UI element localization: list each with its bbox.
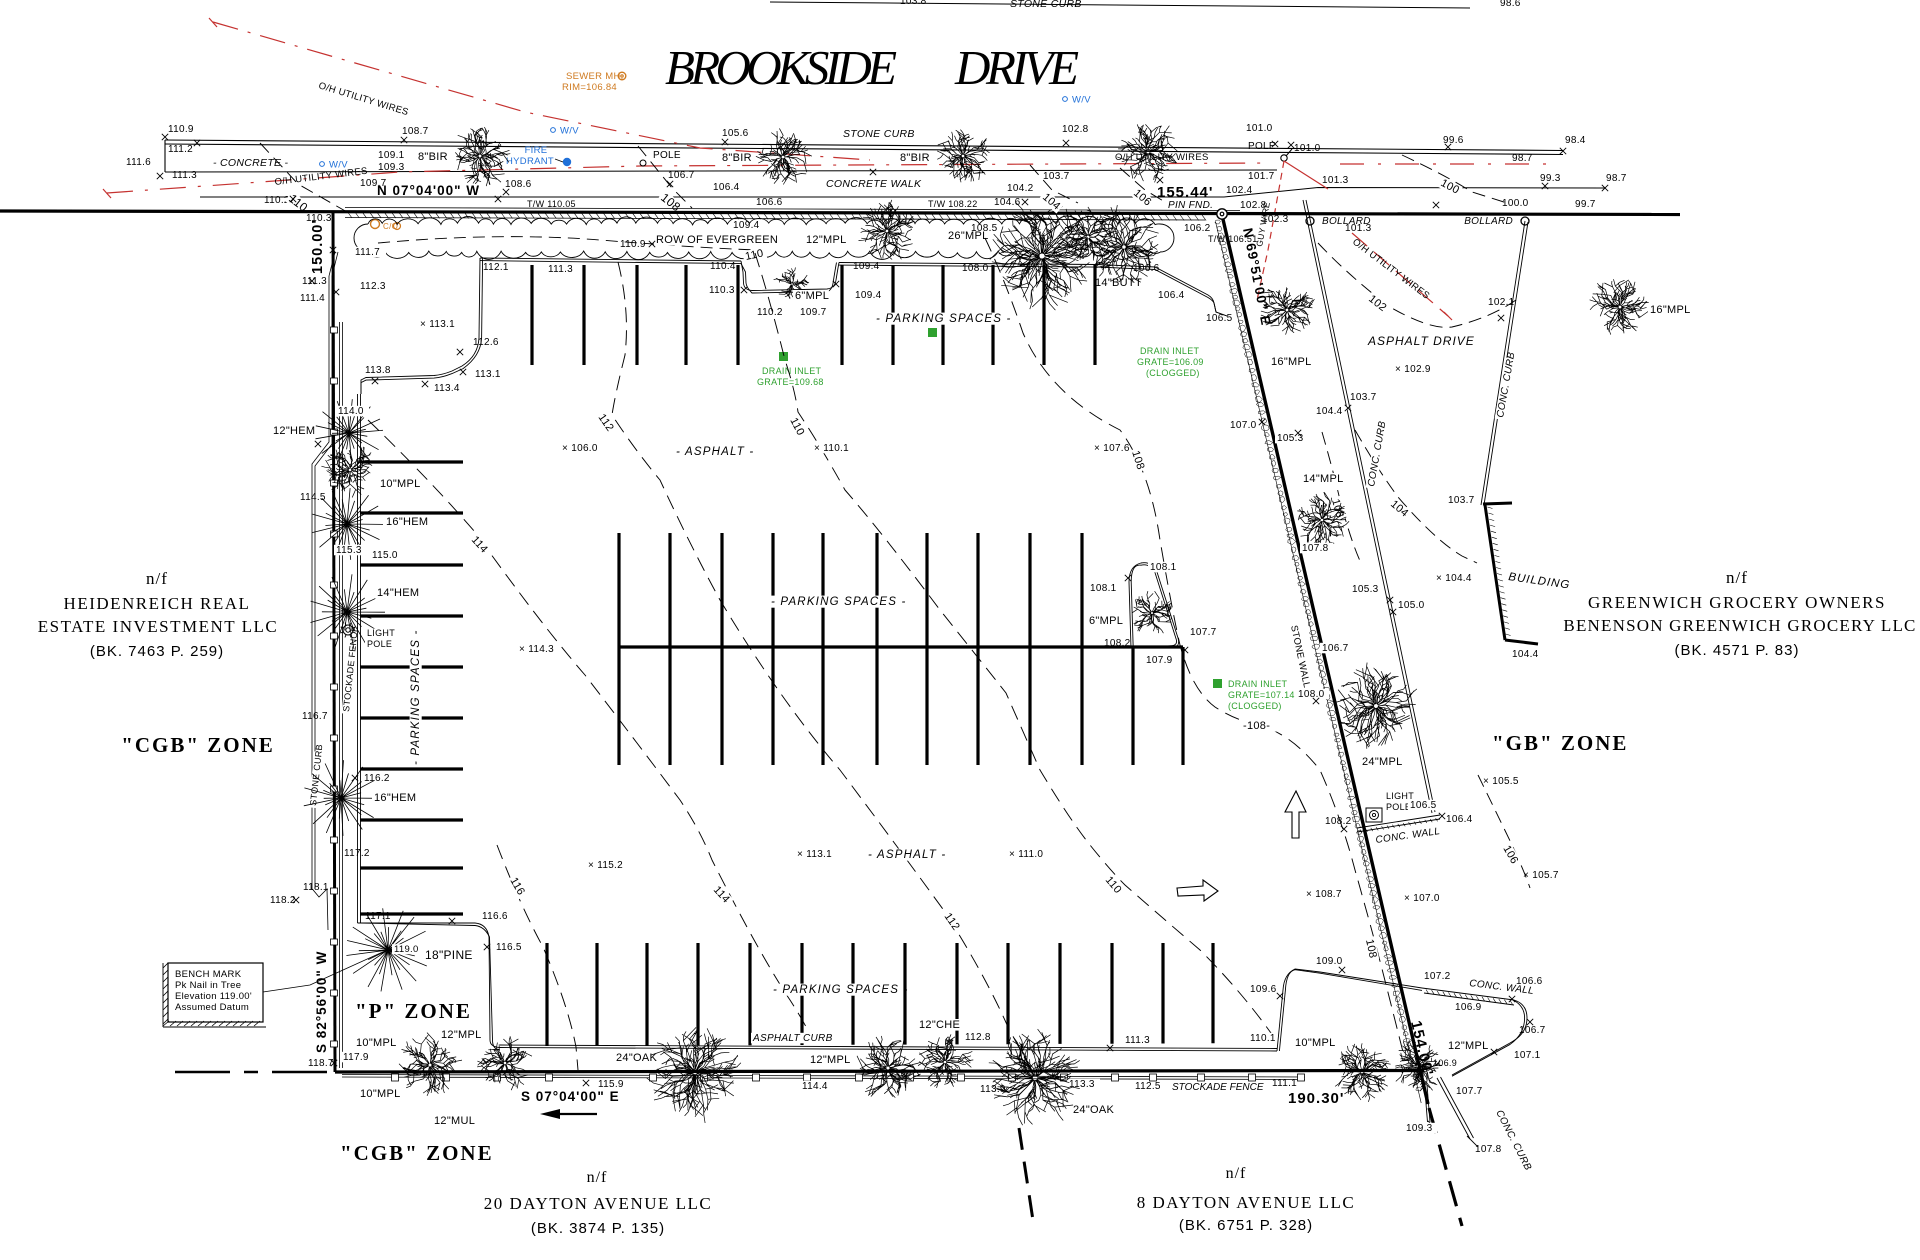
svg-text:DRAIN INLET: DRAIN INLET [1140, 346, 1200, 356]
svg-text:118.7: 118.7 [308, 1058, 334, 1069]
svg-text:117.2: 117.2 [344, 848, 370, 859]
svg-text:(BK. 7463 P. 259): (BK. 7463 P. 259) [90, 643, 224, 660]
svg-text:× 105.7: × 105.7 [1523, 870, 1559, 881]
svg-text:6"MPL: 6"MPL [795, 290, 829, 302]
svg-text:GREENWICH GROCERY OWNERS: GREENWICH GROCERY OWNERS [1588, 593, 1886, 612]
svg-text:103.7: 103.7 [1350, 392, 1377, 403]
svg-text:24"OAK: 24"OAK [1073, 1104, 1115, 1116]
svg-text:107.2: 107.2 [1424, 971, 1451, 982]
svg-text:DRIVE: DRIVE [954, 40, 1079, 95]
svg-text:ROW OF EVERGREEN: ROW OF EVERGREEN [656, 234, 778, 246]
svg-text:× 111.0: × 111.0 [1009, 849, 1043, 860]
svg-text:105.6: 105.6 [722, 128, 749, 139]
svg-text:(CLOGGED): (CLOGGED) [1146, 368, 1200, 378]
svg-text:106.6: 106.6 [1516, 976, 1543, 987]
svg-text:(BK. 3874 P. 135): (BK. 3874 P. 135) [531, 1220, 665, 1237]
svg-text:112.6: 112.6 [473, 337, 499, 348]
svg-text:101.7: 101.7 [1248, 171, 1275, 182]
svg-text:"CGB" ZONE: "CGB" ZONE [121, 733, 275, 757]
svg-text:108.2: 108.2 [1104, 638, 1131, 649]
svg-text:104.4: 104.4 [1316, 406, 1343, 417]
svg-text:12"HEM: 12"HEM [273, 425, 315, 437]
svg-text:112.8: 112.8 [965, 1032, 991, 1043]
svg-text:109.4: 109.4 [733, 220, 760, 231]
svg-text:W/V: W/V [1072, 95, 1091, 106]
svg-text:150.00': 150.00' [310, 219, 326, 274]
svg-text:n/f: n/f [1226, 1165, 1247, 1182]
svg-text:- PARKING SPACES -: - PARKING SPACES - [771, 596, 907, 608]
svg-text:14"BUTT: 14"BUTT [1095, 277, 1142, 289]
svg-text:ASPHALT DRIVE: ASPHALT DRIVE [1367, 334, 1475, 348]
svg-text:10"MPL: 10"MPL [360, 1088, 401, 1100]
svg-text:- CONCRETE -: - CONCRETE - [213, 157, 289, 169]
svg-text:S 82°56'00" W: S 82°56'00" W [314, 951, 329, 1053]
svg-text:110.3: 110.3 [306, 213, 332, 224]
svg-text:107.7: 107.7 [1456, 1086, 1483, 1097]
svg-text:109.7: 109.7 [360, 178, 387, 189]
svg-text:24"OAK: 24"OAK [616, 1052, 658, 1064]
svg-text:FIRE: FIRE [525, 145, 548, 156]
svg-text:10"MPL: 10"MPL [356, 1037, 397, 1049]
svg-text:106.2: 106.2 [1184, 223, 1211, 234]
svg-text:116.5: 116.5 [496, 942, 522, 953]
svg-text:110.9: 110.9 [620, 239, 646, 250]
svg-text:107.8: 107.8 [1302, 543, 1329, 554]
svg-text:103.7: 103.7 [1043, 171, 1070, 182]
svg-text:20 DAYTON AVENUE LLC: 20 DAYTON AVENUE LLC [484, 1194, 713, 1213]
svg-text:101.3: 101.3 [1322, 175, 1349, 186]
svg-text:102.1: 102.1 [1488, 297, 1515, 308]
svg-text:× 108.7: × 108.7 [1306, 889, 1342, 900]
svg-text:BENENSON GREENWICH GROCERY LLC: BENENSON GREENWICH GROCERY LLC [1563, 616, 1916, 635]
svg-text:DRAIN INLET: DRAIN INLET [762, 366, 822, 376]
svg-text:116.6: 116.6 [482, 911, 508, 922]
svg-text:111.3: 111.3 [172, 170, 197, 181]
svg-text:101.0: 101.0 [1294, 143, 1321, 154]
svg-text:- ASPHALT -: - ASPHALT - [676, 446, 754, 458]
svg-text:108.1: 108.1 [1090, 583, 1117, 594]
svg-text:× 114.3: × 114.3 [519, 644, 554, 655]
svg-text:× 102.9: × 102.9 [1395, 364, 1431, 375]
svg-text:102.8: 102.8 [1240, 200, 1267, 211]
svg-text:106.4: 106.4 [1446, 814, 1473, 825]
svg-text:- PARKING SPACES -: - PARKING SPACES - [410, 629, 422, 765]
svg-text:116.2: 116.2 [364, 773, 390, 784]
svg-text:106.7: 106.7 [668, 170, 695, 181]
svg-text:110.3: 110.3 [709, 285, 735, 296]
svg-text:112.5: 112.5 [1135, 1081, 1161, 1092]
svg-text:16"HEM: 16"HEM [386, 516, 428, 528]
svg-text:LIGHT: LIGHT [367, 628, 395, 638]
svg-text:12"MUL: 12"MUL [434, 1115, 475, 1127]
svg-text:"P" ZONE: "P" ZONE [355, 999, 472, 1023]
svg-text:GRATE=106.09: GRATE=106.09 [1137, 357, 1204, 367]
svg-text:98.7: 98.7 [1606, 173, 1627, 184]
svg-text:109.4: 109.4 [853, 261, 880, 272]
svg-text:110.2: 110.2 [757, 307, 783, 318]
svg-text:106.5: 106.5 [1206, 313, 1233, 324]
svg-text:STONE CURB: STONE CURB [843, 128, 915, 140]
svg-text:8"BIR: 8"BIR [722, 152, 752, 164]
svg-text:PIN FND.: PIN FND. [1168, 200, 1213, 211]
svg-text:C/O: C/O [383, 222, 398, 231]
svg-text:109.7: 109.7 [800, 307, 827, 318]
svg-text:113.4: 113.4 [434, 383, 460, 394]
svg-text:n/f: n/f [587, 1169, 608, 1186]
svg-text:8"BIR: 8"BIR [418, 151, 448, 163]
svg-text:POLE: POLE [653, 150, 681, 161]
svg-text:99.6: 99.6 [1443, 135, 1464, 146]
svg-text:114.5: 114.5 [300, 492, 326, 503]
svg-text:111.3: 111.3 [302, 276, 327, 287]
svg-text:BROOKSIDE: BROOKSIDE [665, 40, 897, 95]
svg-text:24"MPL: 24"MPL [1362, 756, 1403, 768]
svg-text:106.6: 106.6 [756, 197, 783, 208]
svg-text:108.7: 108.7 [402, 126, 429, 137]
svg-text:104.4: 104.4 [1512, 649, 1539, 660]
svg-text:CONCRETE WALK: CONCRETE WALK [826, 178, 922, 190]
svg-text:106.4: 106.4 [1158, 290, 1185, 301]
svg-text:106.9: 106.9 [1455, 1002, 1482, 1013]
svg-text:12"MPL: 12"MPL [1448, 1040, 1489, 1052]
svg-text:- PARKING SPACES -: - PARKING SPACES - [773, 984, 909, 996]
svg-text:108.0: 108.0 [1298, 689, 1325, 700]
svg-text:98.7: 98.7 [1512, 153, 1533, 164]
svg-text:Pk Nail in Tree: Pk Nail in Tree [175, 980, 241, 991]
svg-text:16"HEM: 16"HEM [374, 792, 416, 804]
svg-text:106.9: 106.9 [1433, 1058, 1457, 1068]
svg-text:SEWER MH.: SEWER MH. [566, 71, 624, 82]
svg-text:POLE: POLE [1248, 141, 1276, 152]
svg-text:111.3: 111.3 [1125, 1035, 1150, 1046]
svg-text:S 07°04'00" E: S 07°04'00" E [521, 1089, 620, 1104]
svg-text:× 106.0: × 106.0 [562, 443, 598, 454]
svg-text:111.7: 111.7 [355, 247, 380, 258]
svg-text:× 107.6: × 107.6 [1094, 443, 1130, 454]
svg-text:113.3: 113.3 [1069, 1079, 1095, 1090]
svg-text:× 113.1: × 113.1 [420, 319, 455, 330]
svg-text:16"MPL: 16"MPL [1650, 304, 1691, 316]
svg-text:114.0: 114.0 [338, 406, 364, 417]
svg-text:- PARKING SPACES -: - PARKING SPACES - [876, 313, 1012, 325]
svg-text:107.0: 107.0 [1230, 420, 1257, 431]
svg-text:Elevation 119.00': Elevation 119.00' [175, 991, 252, 1002]
svg-text:117.1: 117.1 [365, 911, 391, 922]
svg-text:n/f: n/f [146, 569, 168, 588]
svg-text:12"MPL: 12"MPL [806, 234, 847, 246]
svg-text:BENCH MARK: BENCH MARK [175, 969, 242, 980]
svg-text:109.4: 109.4 [855, 290, 882, 301]
svg-text:116.7: 116.7 [302, 711, 328, 722]
svg-text:100.0: 100.0 [1502, 198, 1529, 209]
svg-text:111.3: 111.3 [548, 264, 573, 275]
svg-text:109.3: 109.3 [1406, 1123, 1433, 1134]
svg-text:102.3: 102.3 [1262, 214, 1289, 225]
svg-text:102.4: 102.4 [1226, 185, 1253, 196]
svg-text:10"MPL: 10"MPL [380, 478, 421, 490]
svg-text:× 107.0: × 107.0 [1404, 893, 1440, 904]
svg-text:110.9: 110.9 [168, 124, 194, 135]
svg-text:HYDRANT: HYDRANT [506, 156, 554, 167]
svg-text:107.7: 107.7 [1190, 627, 1217, 638]
svg-text:108.1: 108.1 [1150, 562, 1177, 573]
svg-text:106.7: 106.7 [1322, 643, 1349, 654]
svg-text:16"MPL: 16"MPL [1271, 356, 1312, 368]
svg-text:14"MPL: 14"MPL [1303, 473, 1344, 485]
svg-text:109.3: 109.3 [378, 162, 405, 173]
svg-text:(CLOGGED): (CLOGGED) [1228, 701, 1282, 711]
svg-text:111.4: 111.4 [300, 293, 325, 304]
svg-text:117.9: 117.9 [343, 1052, 369, 1063]
svg-text:Assumed Datum: Assumed Datum [175, 1002, 249, 1013]
svg-text:POLE: POLE [1386, 802, 1411, 812]
svg-text:112.1: 112.1 [483, 262, 509, 273]
svg-text:12"MPL: 12"MPL [441, 1029, 482, 1041]
svg-text:12"MPL: 12"MPL [810, 1054, 851, 1066]
svg-text:108.5: 108.5 [971, 223, 998, 234]
svg-text:DRAIN INLET: DRAIN INLET [1228, 679, 1288, 689]
svg-text:115.9: 115.9 [598, 1079, 624, 1090]
svg-text:103.7: 103.7 [1448, 495, 1475, 506]
svg-text:107.8: 107.8 [1475, 1144, 1502, 1155]
svg-text:109.6: 109.6 [1250, 984, 1277, 995]
svg-text:99.7: 99.7 [1575, 199, 1596, 210]
svg-text:110.1: 110.1 [1250, 1033, 1276, 1044]
svg-text:- ASPHALT -: - ASPHALT - [868, 849, 946, 861]
svg-text:109.1: 109.1 [378, 150, 405, 161]
svg-text:× 105.5: × 105.5 [1483, 776, 1519, 787]
svg-text:108.2: 108.2 [1325, 816, 1352, 827]
svg-text:105.0: 105.0 [1398, 600, 1425, 611]
svg-text:× 104.4: × 104.4 [1436, 573, 1472, 584]
svg-text:112.3: 112.3 [360, 281, 386, 292]
svg-text:111.6: 111.6 [126, 157, 151, 168]
svg-text:ESTATE INVESTMENT LLC: ESTATE INVESTMENT LLC [38, 617, 278, 636]
svg-text:BOLLARD: BOLLARD [1464, 216, 1513, 227]
svg-text:113.8: 113.8 [365, 365, 391, 376]
svg-text:118.2: 118.2 [270, 895, 296, 906]
svg-text:104.2: 104.2 [1007, 183, 1034, 194]
svg-text:98.4: 98.4 [1565, 135, 1586, 146]
svg-text:108.6: 108.6 [505, 179, 532, 190]
svg-text:T/W 110.05: T/W 110.05 [527, 199, 576, 209]
svg-text:RIM=106.84: RIM=106.84 [562, 82, 617, 93]
svg-text:18"PINE: 18"PINE [425, 948, 473, 962]
svg-text:119.0: 119.0 [394, 944, 419, 955]
svg-text:"GB" ZONE: "GB" ZONE [1492, 731, 1628, 755]
svg-text:118.1: 118.1 [303, 882, 329, 893]
svg-text:× 115.2: × 115.2 [588, 860, 623, 871]
svg-text:6"MPL: 6"MPL [1089, 615, 1123, 627]
svg-text:115.0: 115.0 [372, 550, 398, 561]
svg-text:107.1: 107.1 [1514, 1050, 1541, 1061]
svg-text:T/W 108.22: T/W 108.22 [928, 199, 978, 209]
svg-text:102.8: 102.8 [1062, 124, 1089, 135]
svg-text:114.4: 114.4 [802, 1081, 828, 1092]
svg-text:12"CHE: 12"CHE [919, 1019, 960, 1031]
svg-text:N 07°04'00" W: N 07°04'00" W [377, 183, 480, 198]
svg-text:99.3: 99.3 [1540, 173, 1561, 184]
svg-text:STONE CURB: STONE CURB [1010, 0, 1082, 10]
svg-text:105.3: 105.3 [1352, 584, 1379, 595]
svg-text:106.6: 106.6 [1133, 263, 1160, 274]
svg-text:111.1: 111.1 [1272, 1078, 1297, 1089]
svg-text:W/V: W/V [560, 126, 579, 137]
svg-text:"CGB" ZONE: "CGB" ZONE [340, 1141, 494, 1165]
svg-text:109.0: 109.0 [1316, 956, 1343, 967]
svg-text:10"MPL: 10"MPL [1295, 1037, 1336, 1049]
svg-text:n/f: n/f [1726, 568, 1748, 587]
svg-text:106.5: 106.5 [1410, 800, 1437, 811]
svg-text:103.8: 103.8 [900, 0, 927, 7]
svg-text:107.9: 107.9 [1146, 655, 1173, 666]
svg-text:× 110.1: × 110.1 [814, 443, 849, 454]
svg-text:106.7: 106.7 [1519, 1025, 1546, 1036]
svg-text:113.1: 113.1 [475, 369, 501, 380]
svg-text:HEIDENREICH REAL: HEIDENREICH REAL [64, 594, 251, 613]
svg-text:111.2: 111.2 [168, 144, 193, 155]
svg-text:108.0: 108.0 [962, 263, 989, 274]
svg-text:101.0: 101.0 [1246, 123, 1273, 134]
svg-text:-108-: -108- [1243, 720, 1270, 732]
svg-text:ASPHALT CURB: ASPHALT CURB [752, 1033, 833, 1044]
svg-text:(BK. 4571 P. 83): (BK. 4571 P. 83) [1675, 642, 1800, 659]
svg-text:8"BIR: 8"BIR [900, 152, 930, 164]
svg-text:(BK. 6751 P. 328): (BK. 6751 P. 328) [1179, 1217, 1313, 1234]
svg-text:O/H UTILITY WIRES: O/H UTILITY WIRES [1115, 152, 1209, 163]
svg-text:98.6: 98.6 [1500, 0, 1521, 9]
svg-text:14"HEM: 14"HEM [377, 587, 419, 599]
svg-text:190.30': 190.30' [1288, 1090, 1344, 1107]
svg-text:110.4: 110.4 [710, 261, 736, 272]
svg-text:115.3: 115.3 [336, 545, 362, 556]
svg-text:104.6: 104.6 [994, 197, 1021, 208]
svg-text:POLE: POLE [367, 639, 392, 649]
svg-text:BOLLARD: BOLLARD [1322, 216, 1371, 227]
svg-text:× 113.1: × 113.1 [797, 849, 832, 860]
svg-text:STOCKADE FENCE: STOCKADE FENCE [1172, 1082, 1264, 1093]
svg-text:GRATE=107.14: GRATE=107.14 [1228, 690, 1295, 700]
svg-text:106.4: 106.4 [713, 182, 740, 193]
svg-text:8 DAYTON AVENUE LLC: 8 DAYTON AVENUE LLC [1137, 1193, 1356, 1212]
svg-text:155.44': 155.44' [1157, 184, 1213, 201]
